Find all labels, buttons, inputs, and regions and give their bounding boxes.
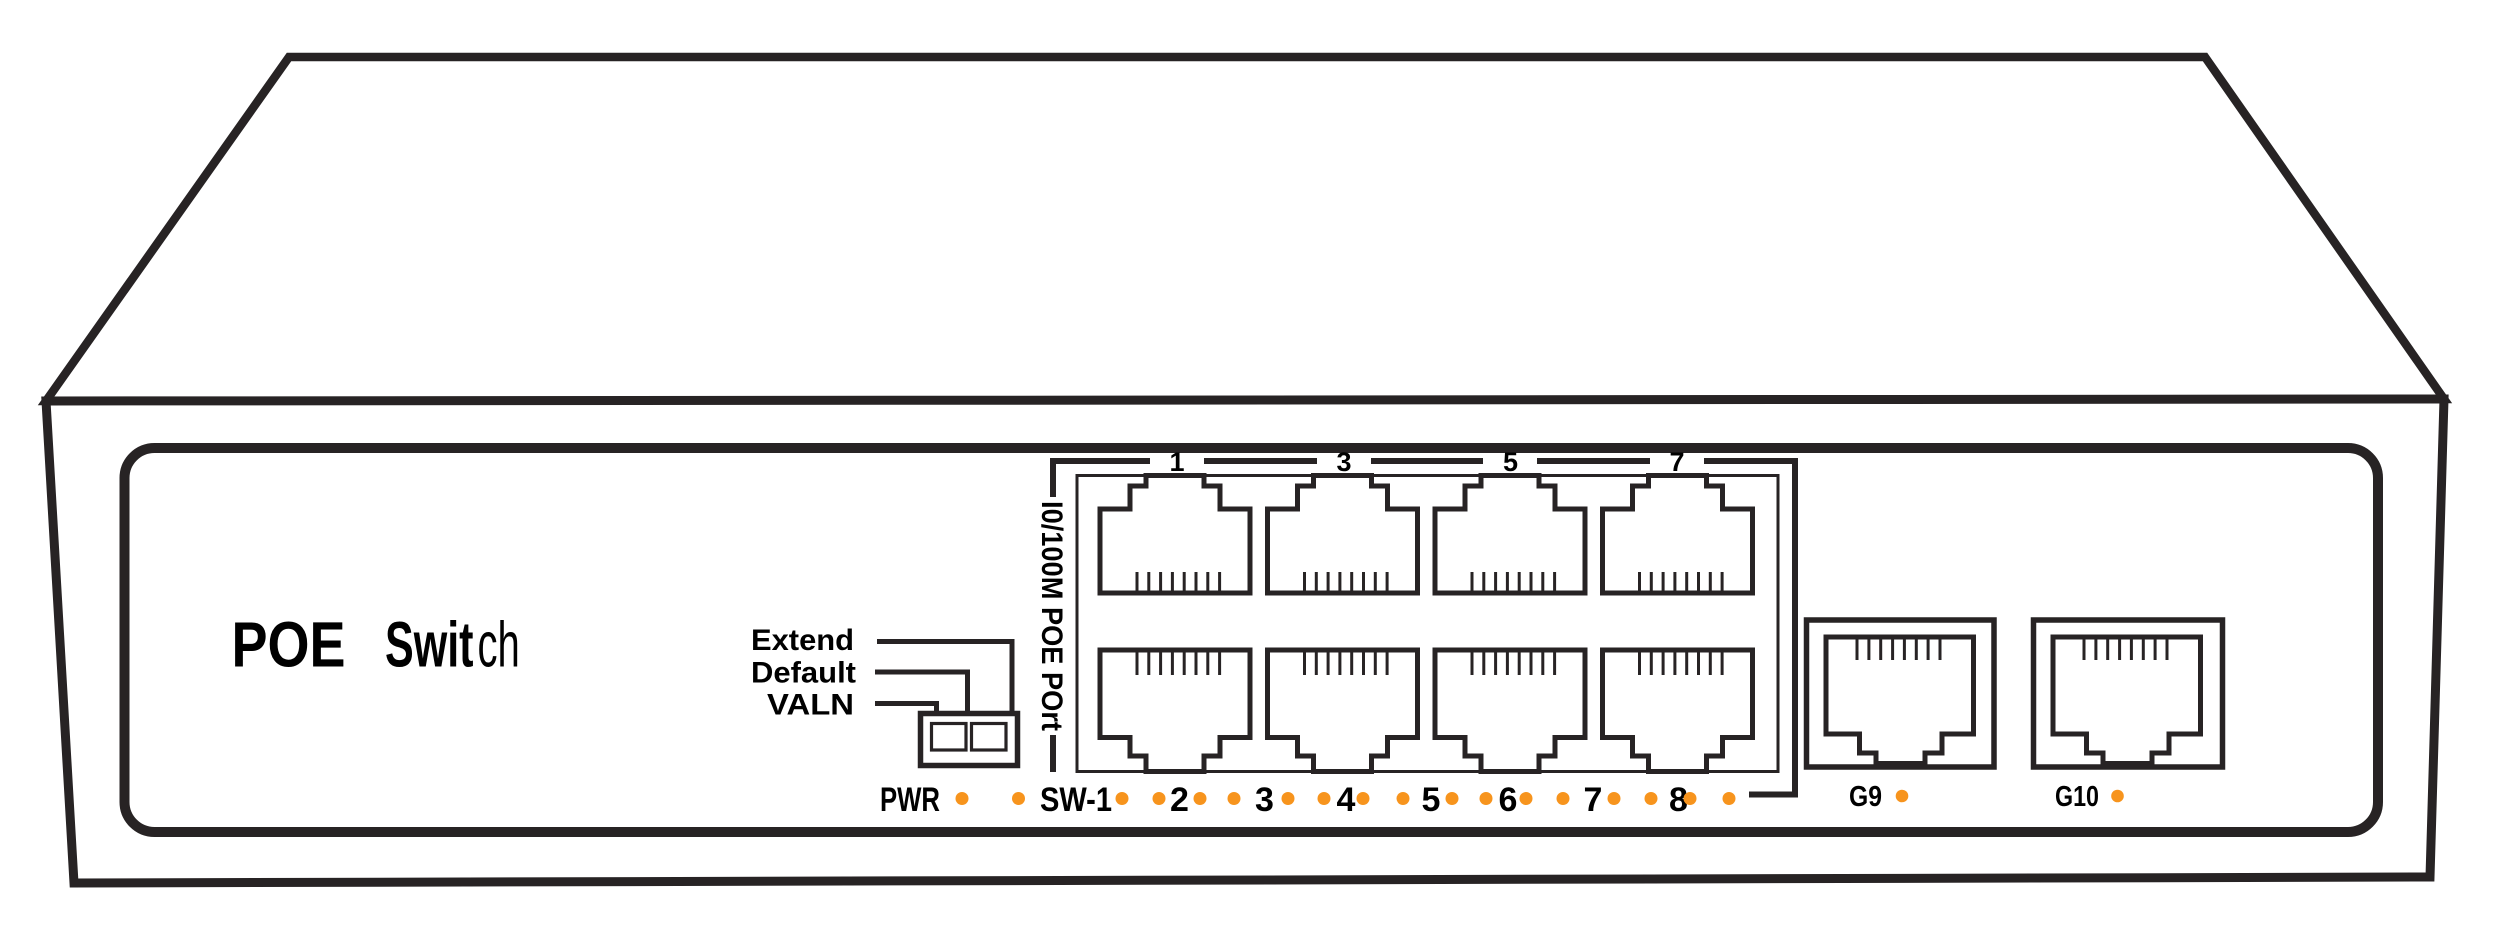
svg-text:3: 3 xyxy=(1255,781,1274,819)
svg-text:PWR: PWR xyxy=(880,781,940,819)
svg-text:I0/100M POE POrt: I0/100M POE POrt xyxy=(1035,501,1068,731)
svg-text:1: 1 xyxy=(1169,447,1184,477)
svg-text:ch: ch xyxy=(478,609,520,681)
svg-text:Default: Default xyxy=(751,657,856,690)
svg-text:6: 6 xyxy=(1499,781,1518,819)
svg-text:SW-1: SW-1 xyxy=(1040,781,1112,819)
svg-text:G10: G10 xyxy=(2055,781,2099,813)
svg-text:4: 4 xyxy=(1337,781,1356,819)
svg-text:7: 7 xyxy=(1584,781,1603,819)
svg-text:3: 3 xyxy=(1336,447,1351,477)
svg-text:POE: POE xyxy=(232,609,346,681)
svg-text:7: 7 xyxy=(1669,447,1684,477)
svg-text:G9: G9 xyxy=(1849,781,1882,813)
svg-text:VALN: VALN xyxy=(767,689,854,722)
svg-text:5: 5 xyxy=(1422,781,1441,819)
svg-text:5: 5 xyxy=(1503,447,1518,477)
svg-text:Extend: Extend xyxy=(751,624,854,657)
svg-text:2: 2 xyxy=(1170,781,1189,819)
svg-text:Swit: Swit xyxy=(385,609,474,681)
